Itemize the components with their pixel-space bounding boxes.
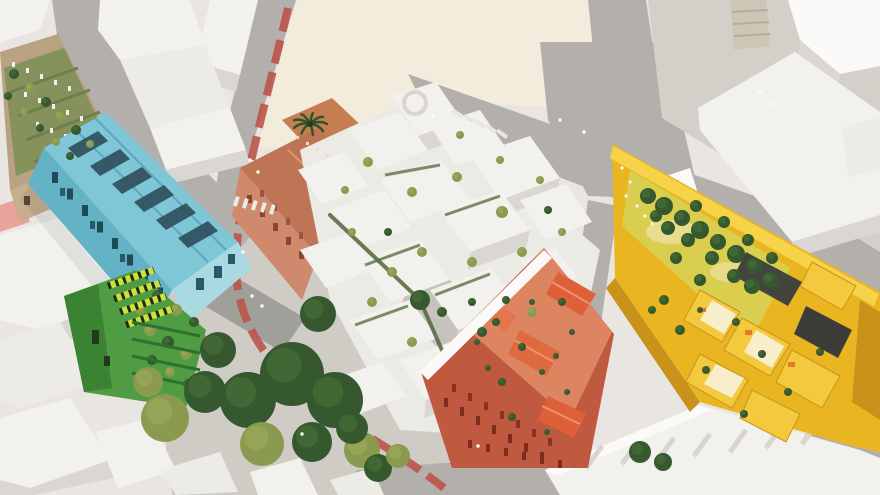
window	[67, 189, 73, 200]
tree-highlight	[570, 330, 573, 333]
balcony	[260, 190, 264, 197]
tree-highlight	[509, 414, 513, 418]
tree-highlight	[204, 335, 224, 355]
render-canvas	[0, 0, 880, 495]
tree-highlight	[385, 229, 389, 233]
tree-highlight	[136, 370, 153, 387]
window	[532, 429, 536, 437]
tree-highlight	[453, 173, 459, 179]
person	[248, 158, 251, 161]
tree-highlight	[759, 351, 763, 355]
tree-highlight	[499, 379, 503, 383]
tree-highlight	[545, 207, 549, 211]
terrace-table	[326, 154, 329, 157]
pergola-post	[38, 98, 41, 103]
tree-highlight	[817, 349, 821, 353]
tree-highlight	[497, 207, 504, 214]
tree-highlight	[559, 229, 563, 233]
pergola-post	[66, 110, 69, 115]
tree-highlight	[706, 252, 714, 260]
person	[250, 294, 253, 297]
person	[558, 118, 561, 121]
tree-highlight	[764, 273, 773, 282]
tree-highlight	[698, 308, 701, 311]
tree-highlight	[528, 308, 534, 314]
tree-highlight	[418, 248, 424, 254]
tree-highlight	[342, 187, 346, 191]
window	[452, 384, 456, 392]
tree-highlight	[671, 253, 678, 260]
tree-highlight	[388, 268, 394, 274]
window	[82, 205, 88, 216]
tree-highlight	[695, 275, 702, 282]
tree-highlight	[188, 375, 211, 398]
tree-highlight	[438, 308, 444, 314]
window	[468, 440, 472, 448]
tree-highlight	[486, 366, 489, 369]
tree-highlight	[733, 319, 737, 323]
tree-highlight	[660, 296, 666, 302]
window	[228, 254, 235, 264]
flower	[624, 194, 627, 197]
window	[90, 221, 95, 229]
tree-highlight	[146, 398, 172, 424]
tree-highlight	[26, 84, 32, 90]
person	[431, 114, 434, 117]
tree-highlight	[468, 258, 474, 264]
pergola-post	[68, 86, 71, 91]
tree-highlight	[693, 223, 703, 233]
tree-highlight	[67, 153, 71, 157]
pergola-post	[54, 80, 57, 85]
window	[196, 278, 204, 290]
window	[504, 448, 508, 456]
tree-highlight	[10, 70, 16, 76]
tree-highlight	[313, 377, 344, 408]
tree-highlight	[540, 370, 543, 373]
window	[558, 460, 562, 468]
tree-highlight	[367, 456, 382, 471]
flower	[643, 214, 646, 217]
orange-accent	[788, 362, 795, 367]
tree-highlight	[537, 177, 541, 181]
tree-highlight	[676, 326, 682, 332]
pergola-post	[50, 128, 53, 133]
window	[484, 402, 488, 410]
tree-highlight	[37, 125, 41, 129]
tree-highlight	[703, 367, 707, 371]
tree-highlight	[503, 297, 507, 301]
window	[127, 255, 133, 266]
tree-highlight	[349, 229, 353, 233]
tree-highlight	[631, 443, 643, 455]
tree-highlight	[226, 377, 257, 408]
balcony	[299, 232, 303, 239]
person	[300, 432, 303, 435]
tree-highlight	[5, 93, 9, 97]
tree-highlight	[662, 222, 670, 230]
person	[256, 170, 259, 173]
person	[476, 444, 479, 447]
flower	[650, 222, 653, 225]
window	[52, 172, 58, 183]
tree-highlight	[712, 235, 721, 244]
tree-highlight	[296, 425, 318, 447]
terrace-table	[296, 136, 299, 139]
window	[476, 416, 480, 425]
tree-highlight	[163, 337, 170, 344]
door-opening	[92, 330, 99, 344]
window	[508, 434, 512, 443]
terrace-table	[306, 142, 309, 145]
tree-highlight	[682, 234, 690, 242]
tree-highlight	[748, 259, 757, 268]
tree-highlight	[518, 248, 524, 254]
window	[97, 222, 103, 233]
tree-highlight	[469, 299, 473, 303]
tree-highlight	[545, 430, 548, 433]
flower	[628, 180, 631, 183]
tree-highlight	[42, 98, 48, 104]
orange-accent	[745, 330, 752, 335]
tree-highlight	[530, 300, 533, 303]
window	[492, 425, 496, 434]
tree-highlight	[304, 299, 324, 319]
window	[112, 238, 118, 249]
balcony	[286, 218, 290, 225]
stone-tower	[730, 0, 770, 50]
person	[582, 130, 585, 133]
tree-highlight	[72, 126, 78, 132]
tree-highlight	[339, 415, 357, 433]
flower	[620, 166, 623, 169]
window	[460, 407, 464, 416]
tree-highlight	[651, 211, 658, 218]
tree-highlight	[266, 347, 301, 382]
pergola-post	[80, 116, 83, 121]
window	[486, 444, 490, 452]
tree-highlight	[785, 389, 789, 393]
person	[260, 304, 263, 307]
architectural-aerial-render	[0, 0, 880, 495]
pergola-post	[26, 68, 29, 73]
tree-highlight	[559, 299, 563, 303]
window	[214, 266, 222, 278]
tree-highlight	[519, 344, 523, 348]
tree-highlight	[767, 253, 774, 260]
tree-highlight	[388, 446, 401, 459]
window	[516, 420, 520, 428]
tree-highlight	[478, 328, 484, 334]
window	[60, 188, 65, 196]
tree-highlight	[87, 141, 91, 145]
window	[524, 443, 528, 452]
tree-highlight	[746, 279, 755, 288]
tree-highlight	[56, 112, 62, 118]
tree-highlight	[457, 132, 461, 136]
tree-highlight	[53, 139, 57, 143]
terrace-table	[316, 148, 319, 151]
window	[120, 254, 125, 262]
tree-highlight	[412, 292, 423, 303]
tree-highlight	[743, 235, 750, 242]
person	[770, 102, 773, 105]
tree-highlight	[408, 338, 414, 344]
tree-highlight	[364, 158, 370, 164]
window	[286, 237, 291, 245]
tree-highlight	[475, 340, 478, 343]
tree-highlight	[21, 109, 25, 113]
flower	[635, 204, 638, 207]
window	[104, 356, 110, 366]
tree-highlight	[408, 188, 414, 194]
pergola-post	[40, 74, 43, 79]
person	[758, 90, 761, 93]
tree-highlight	[554, 354, 557, 357]
window	[468, 393, 472, 401]
tree-highlight	[166, 368, 172, 374]
window	[444, 398, 448, 407]
tree-highlight	[676, 211, 685, 220]
pergola-post	[52, 104, 55, 109]
window	[540, 456, 544, 464]
window	[273, 223, 278, 231]
pergola-post	[24, 92, 27, 97]
tree-highlight	[691, 201, 698, 208]
tree-highlight	[729, 247, 739, 257]
tree-highlight	[368, 298, 374, 304]
tree-highlight	[493, 319, 497, 323]
tree-highlight	[656, 455, 666, 465]
tree-highlight	[649, 307, 653, 311]
tree-highlight	[244, 426, 268, 450]
tree-highlight	[190, 318, 196, 324]
tree-highlight	[497, 157, 501, 161]
window	[500, 411, 504, 419]
pergola-post	[12, 62, 15, 67]
tree-highlight	[719, 217, 726, 224]
person	[447, 108, 450, 111]
window	[522, 452, 526, 460]
person	[241, 250, 244, 253]
tree-highlight	[657, 199, 667, 209]
tree-highlight	[642, 189, 651, 198]
tree-highlight	[741, 411, 745, 415]
palm-crown	[307, 121, 313, 127]
window	[548, 438, 552, 446]
tree-highlight	[728, 270, 736, 278]
tree-highlight	[565, 390, 568, 393]
